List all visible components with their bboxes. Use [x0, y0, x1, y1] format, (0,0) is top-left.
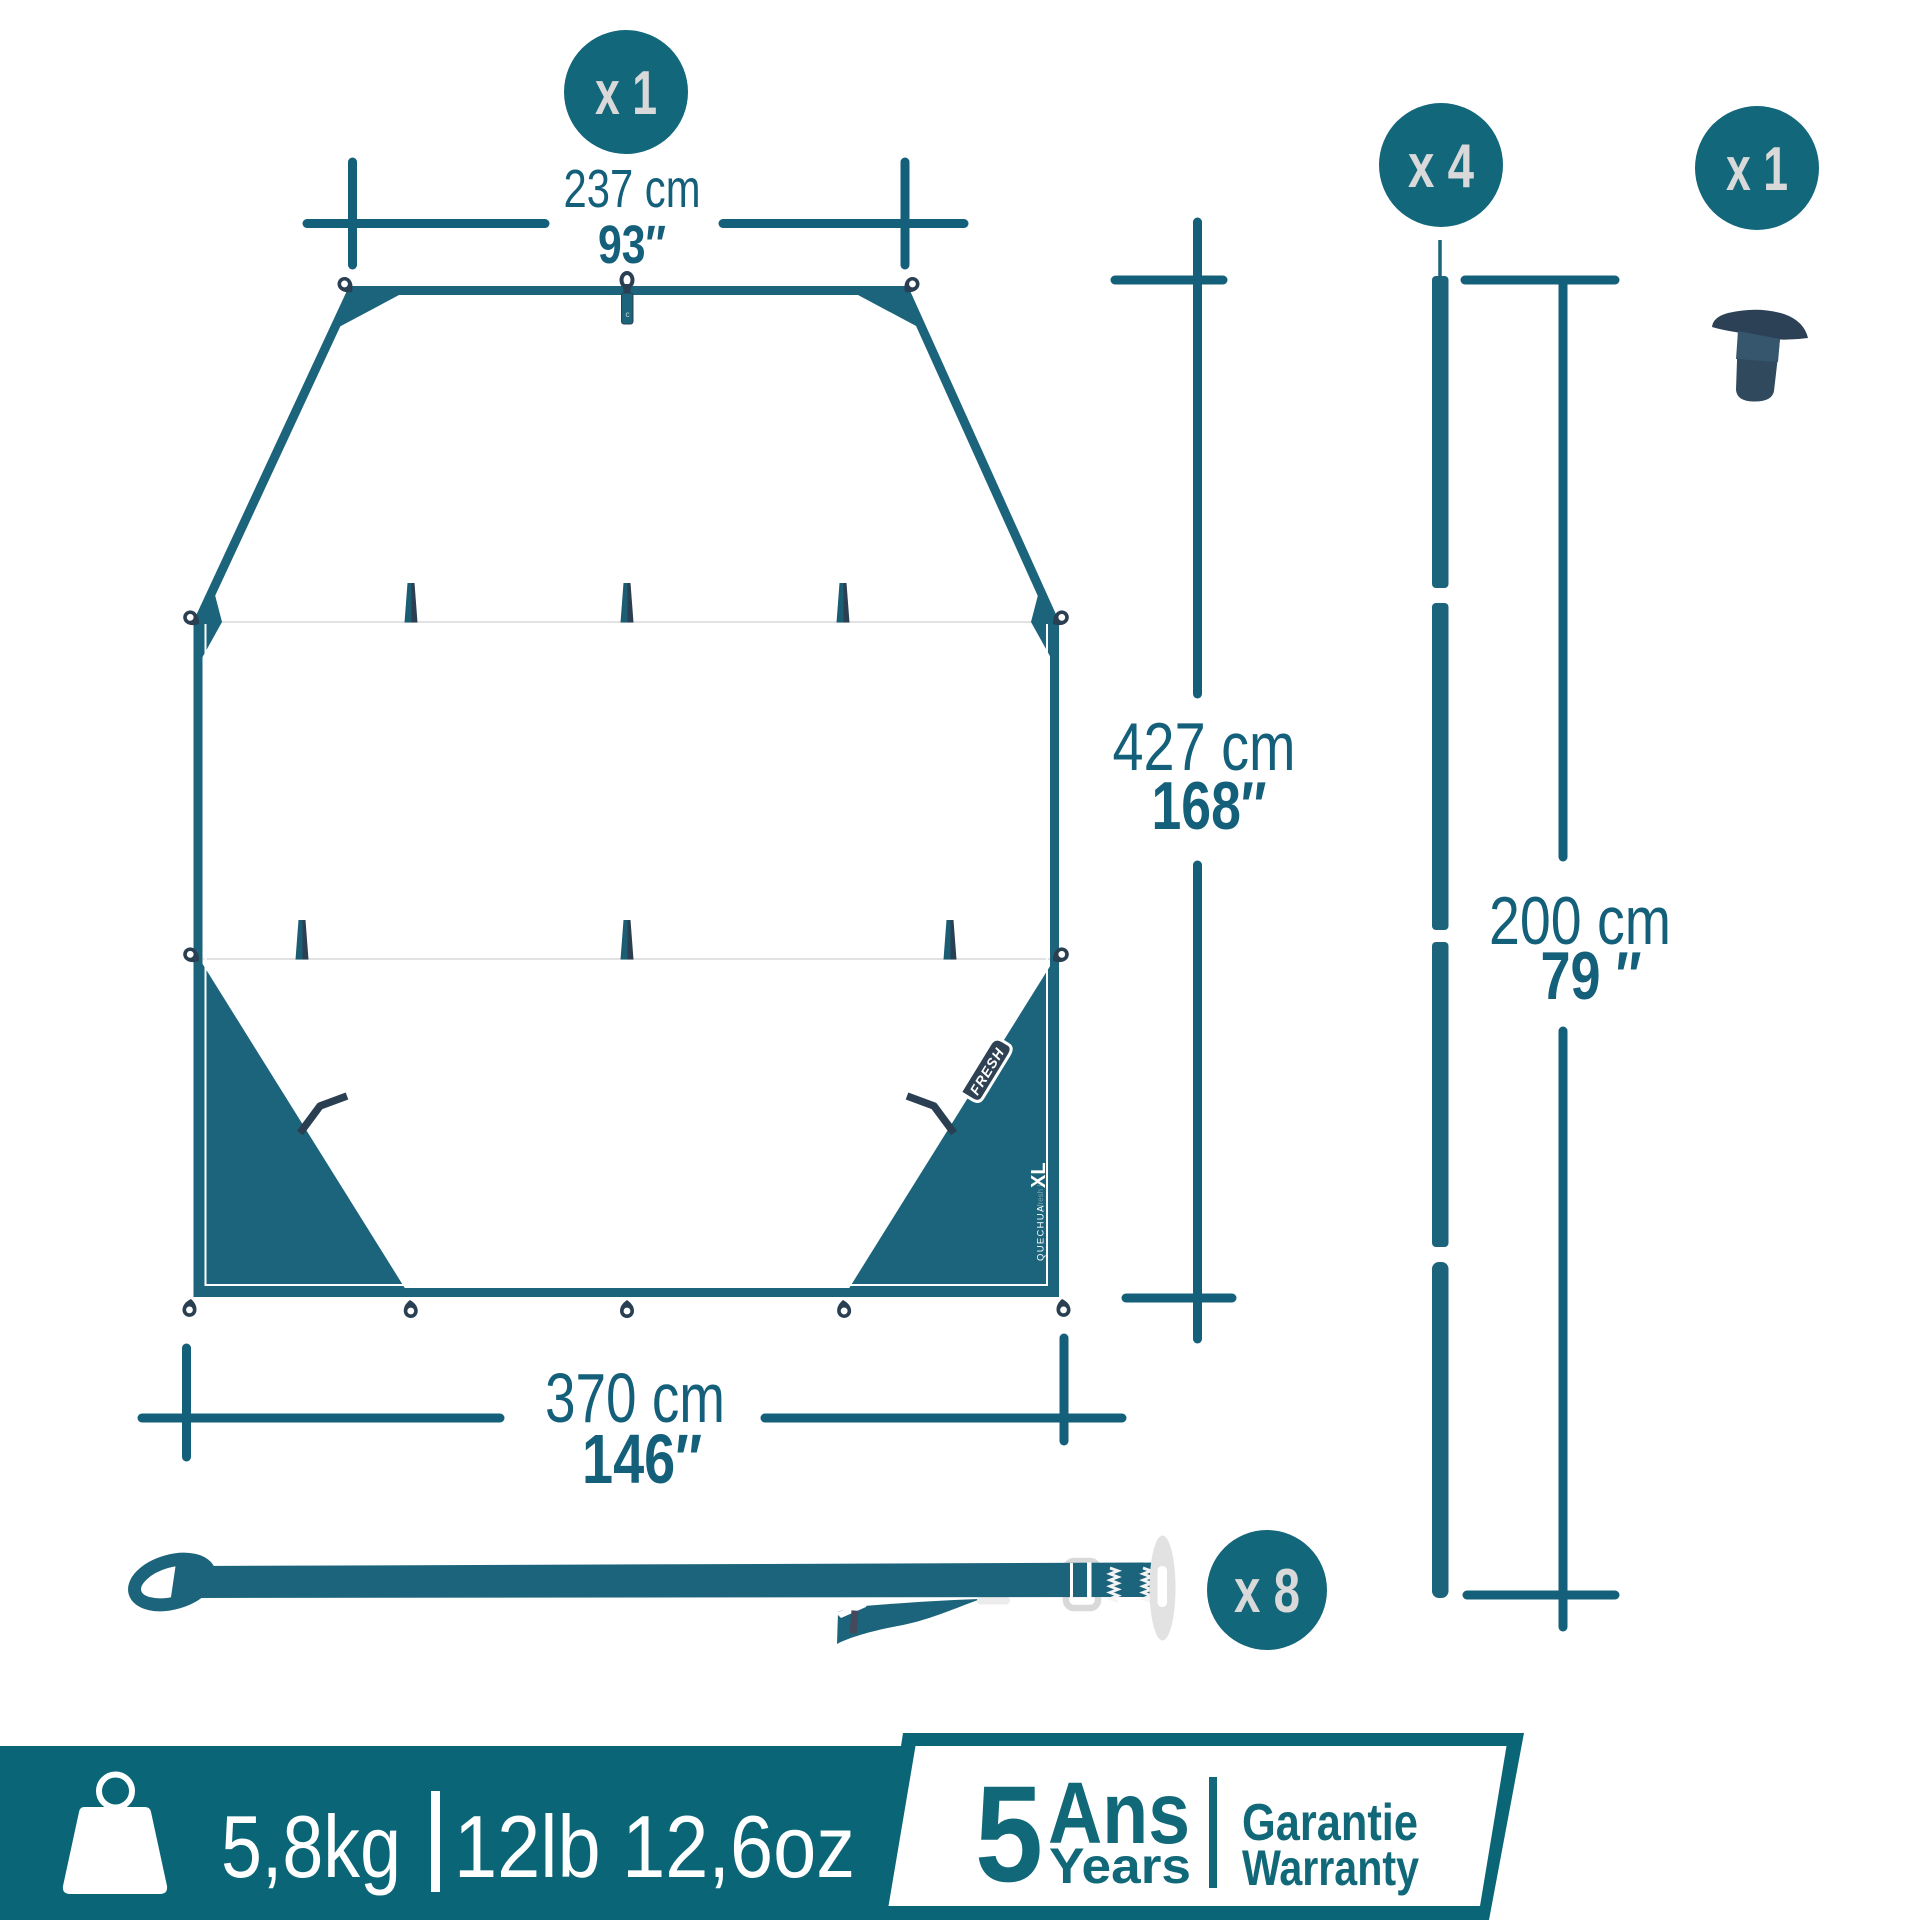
svg-text:QUECHUA: QUECHUA — [1036, 1204, 1047, 1261]
svg-text:x 4: x 4 — [1408, 132, 1474, 201]
svg-text:237 cm: 237 cm — [564, 159, 701, 219]
svg-text:x 1: x 1 — [595, 59, 657, 128]
svg-text:Warranty: Warranty — [1242, 1840, 1419, 1896]
svg-text:5,8kg: 5,8kg — [221, 1797, 401, 1896]
svg-text:Years: Years — [1049, 1838, 1191, 1894]
svg-text:XL: XL — [1028, 1162, 1050, 1188]
svg-text:79 ″: 79 ″ — [1541, 938, 1642, 1014]
svg-text:93″: 93″ — [598, 215, 666, 275]
svg-text:x 1: x 1 — [1726, 135, 1788, 204]
svg-text:x 8: x 8 — [1234, 1557, 1300, 1626]
svg-text:168″: 168″ — [1152, 768, 1267, 844]
svg-text:146″: 146″ — [582, 1420, 702, 1498]
svg-text:12lb 12,6oz: 12lb 12,6oz — [454, 1797, 855, 1896]
svg-text:5: 5 — [975, 1758, 1043, 1911]
